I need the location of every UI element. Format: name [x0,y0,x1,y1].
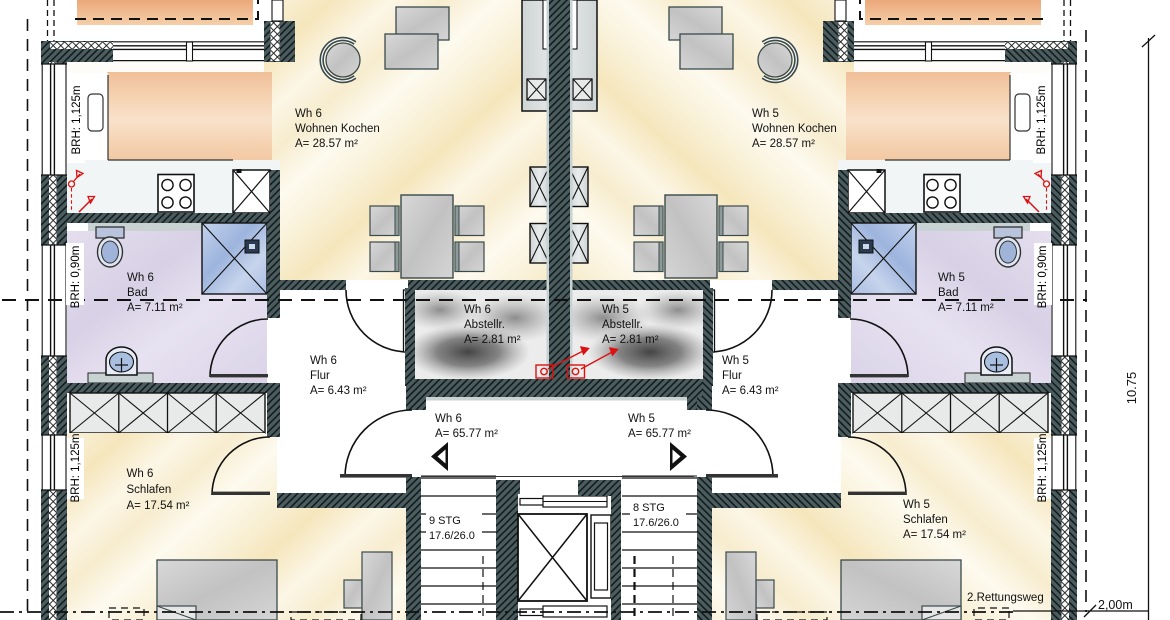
svg-text:Bad: Bad [938,287,958,299]
svg-text:A= 7.11 m²: A= 7.11 m² [938,302,994,314]
svg-text:Schlafen: Schlafen [127,484,172,496]
svg-text:BRH: 0,90m: BRH: 0,90m [1037,246,1049,309]
svg-text:A= 28.57 m²: A= 28.57 m² [752,138,815,150]
svg-text:17.6/26.0: 17.6/26.0 [429,530,475,542]
svg-text:Wh 6: Wh 6 [435,413,462,425]
svg-text:A= 17.54 m²: A= 17.54 m² [903,529,966,541]
svg-text:Flur: Flur [310,370,330,382]
svg-text:Wohnen Kochen: Wohnen Kochen [295,123,380,135]
svg-text:BRH: 1,125m: BRH: 1,125m [1036,85,1048,154]
svg-text:Wh 6: Wh 6 [310,355,337,367]
svg-text:Abstellr.: Abstellr. [602,319,643,331]
svg-text:2,00m: 2,00m [1098,598,1133,612]
svg-text:Wh 6: Wh 6 [127,272,154,284]
svg-text:A= 65.77 m²: A= 65.77 m² [628,428,691,440]
svg-text:A= 2.81 m²: A= 2.81 m² [602,334,659,346]
svg-text:Wh 6: Wh 6 [464,304,491,316]
svg-text:A= 28.57 m²: A= 28.57 m² [295,138,358,150]
svg-text:Wohnen Kochen: Wohnen Kochen [752,123,837,135]
svg-text:Wh 5: Wh 5 [628,413,655,425]
svg-text:Wh 5: Wh 5 [752,108,779,120]
svg-text:Wh 5: Wh 5 [722,355,749,367]
svg-text:A= 2.81 m²: A= 2.81 m² [464,334,521,346]
svg-text:Wh 6: Wh 6 [295,108,322,120]
svg-text:BRH: 0,90m: BRH: 0,90m [70,246,82,309]
svg-text:A= 65.77 m²: A= 65.77 m² [435,428,498,440]
svg-text:A= 17.54 m²: A= 17.54 m² [127,500,190,512]
svg-text:A= 7.11 m²: A= 7.11 m² [127,302,183,314]
svg-text:Bad: Bad [127,287,147,299]
svg-text:A= 6.43 m²: A= 6.43 m² [310,385,367,397]
svg-text:Wh 5: Wh 5 [602,304,629,316]
svg-text:Schlafen: Schlafen [903,514,948,526]
svg-text:BRH: 1,125m: BRH: 1,125m [71,85,83,154]
svg-text:BRH: 1,125m: BRH: 1,125m [70,433,82,502]
svg-text:Abstellr.: Abstellr. [464,319,505,331]
svg-text:Flur: Flur [722,370,742,382]
svg-text:10.75: 10.75 [1124,372,1139,405]
svg-text:BRH: 1,125m: BRH: 1,125m [1037,433,1049,502]
svg-text:17.6/26.0: 17.6/26.0 [633,517,679,529]
svg-text:8 STG: 8 STG [633,502,665,514]
svg-text:2.Rettungsweg: 2.Rettungsweg [967,592,1044,604]
svg-text:Wh 6: Wh 6 [127,468,154,480]
svg-text:Wh 5: Wh 5 [938,272,965,284]
svg-text:Wh 5: Wh 5 [903,499,930,511]
svg-text:A= 6.43 m²: A= 6.43 m² [722,385,779,397]
svg-text:9 STG: 9 STG [429,515,461,527]
